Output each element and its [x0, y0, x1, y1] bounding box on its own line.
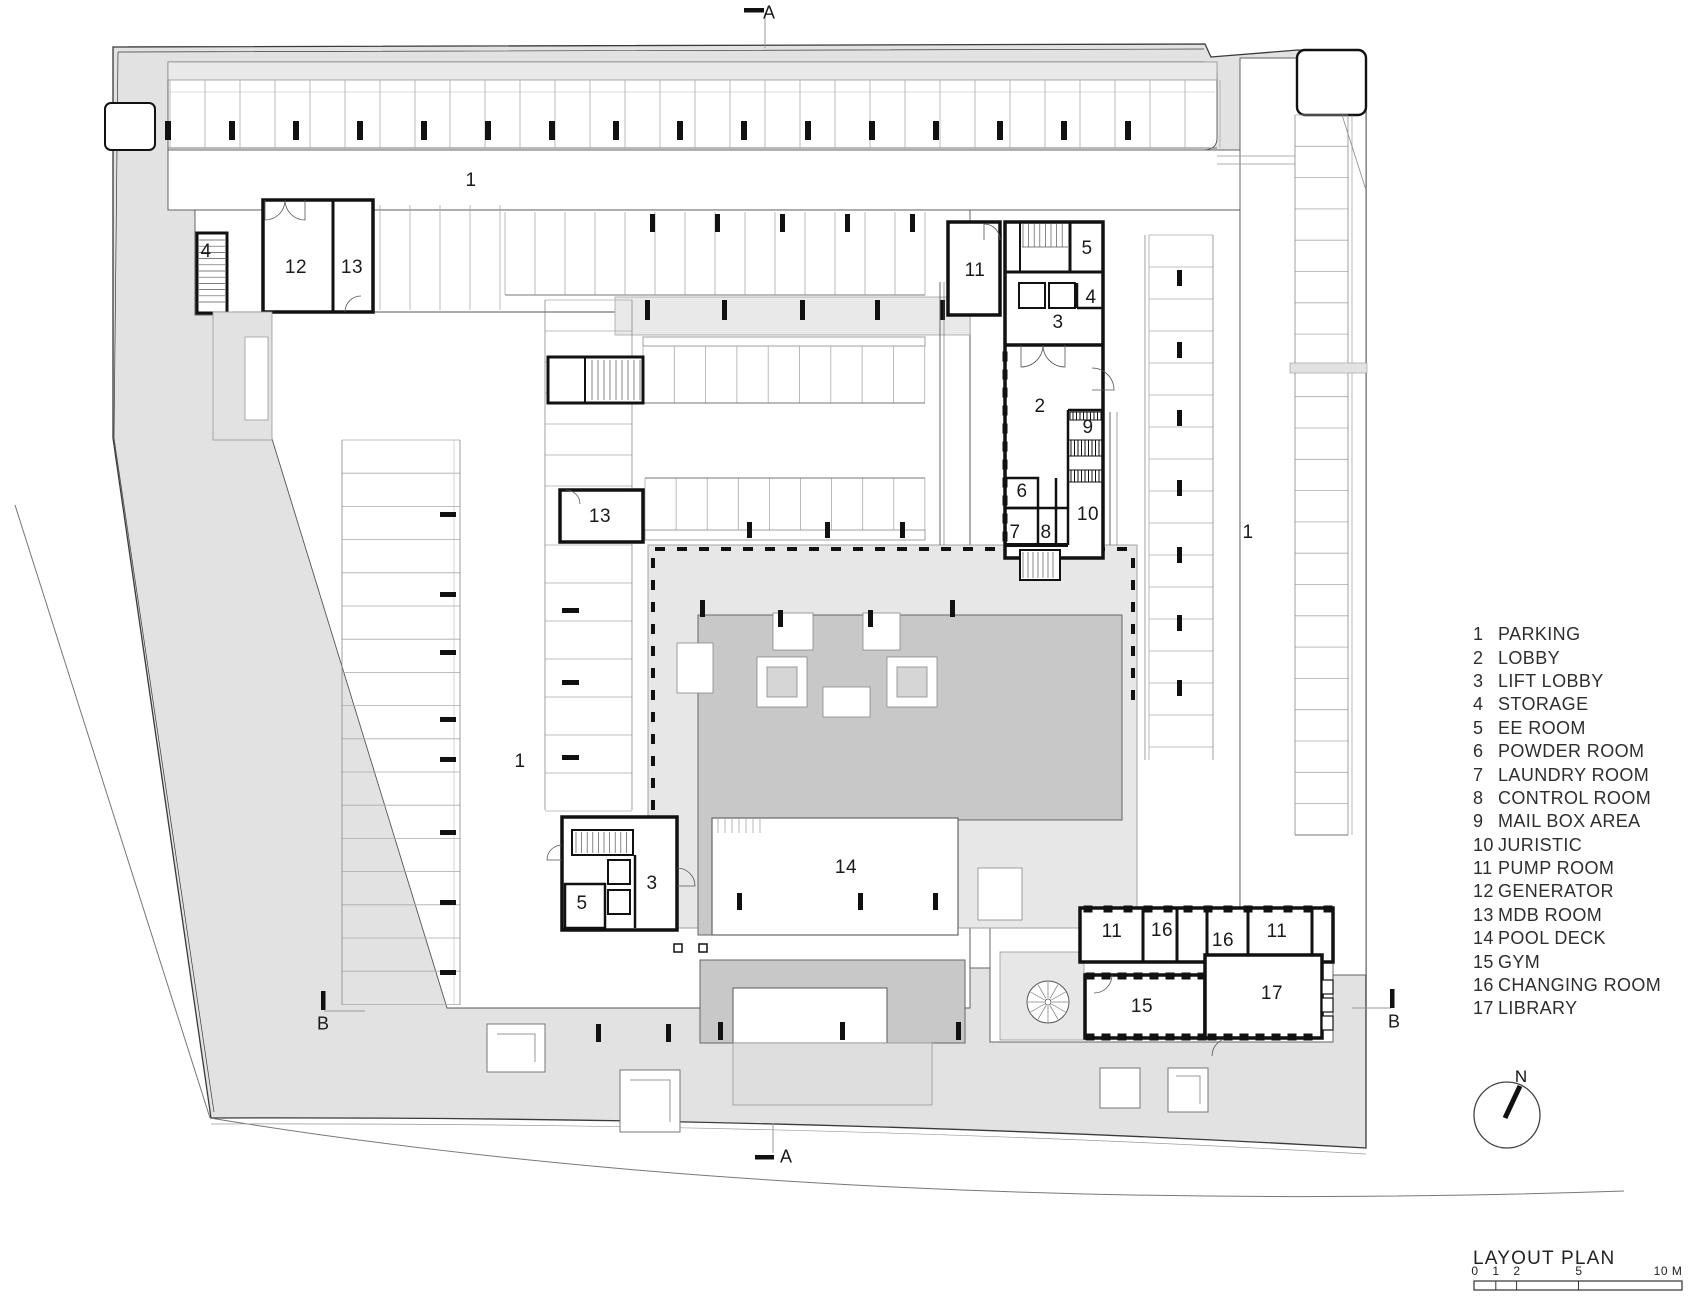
section-b-left-tick [321, 991, 326, 1010]
legend-item-number: 10 [1473, 835, 1498, 856]
section-marker-letter: A [763, 3, 775, 24]
legend: 1PARKING2LOBBY3LIFT LOBBY4STORAGE5EE ROO… [1473, 623, 1661, 1021]
legend-item-number: 1 [1473, 624, 1498, 645]
legend-item-number: 6 [1473, 741, 1498, 762]
legend-item: 1PARKING [1473, 623, 1661, 646]
plan-room-label: 1 [1242, 522, 1253, 544]
legend-item-label: EE ROOM [1498, 718, 1586, 739]
legend-item-label: GENERATOR [1498, 881, 1614, 902]
plan-room-label: 16 [1151, 920, 1173, 942]
plan-room-label: 4 [1085, 287, 1096, 309]
legend-item-number: 8 [1473, 788, 1498, 809]
legend-item: 4STORAGE [1473, 693, 1661, 716]
stair-below-lobby [1020, 550, 1060, 580]
legend-item-label: LIBRARY [1498, 998, 1578, 1019]
legend-item: 3LIFT LOBBY [1473, 670, 1661, 693]
plan-room-label: 17 [1261, 983, 1283, 1005]
north-arrow [1474, 1082, 1540, 1148]
plan-room-label: 9 [1082, 417, 1093, 439]
legend-item-label: PARKING [1498, 624, 1580, 645]
spiral-stair [1027, 981, 1069, 1023]
legend-item-label: MAIL BOX AREA [1498, 811, 1641, 832]
plan-room-label: 13 [589, 506, 611, 528]
legend-item-label: LIFT LOBBY [1498, 671, 1604, 692]
legend-item-label: STORAGE [1498, 694, 1589, 715]
plan-room-label: 5 [1081, 238, 1092, 260]
legend-item-label: CHANGING ROOM [1498, 975, 1661, 996]
plan-room-label: 1 [465, 170, 476, 192]
section-a-bottom-tick [755, 1155, 774, 1160]
section-marker-letter: A [780, 1147, 792, 1168]
north-needle [1505, 1086, 1520, 1118]
legend-item-number: 2 [1473, 648, 1498, 669]
plan-room-label: 10 [1077, 504, 1099, 526]
plan-room-label: 11 [1267, 921, 1288, 943]
legend-item-label: LAUNDRY ROOM [1498, 765, 1649, 786]
legend-item-number: 14 [1473, 928, 1498, 949]
legend-item: 10JURISTIC [1473, 834, 1661, 857]
plan-room-label: 8 [1040, 522, 1051, 544]
legend-item-label: GYM [1498, 952, 1540, 973]
plan-room-label: 16 [1212, 930, 1234, 952]
legend-item-number: 5 [1473, 718, 1498, 739]
plan-room-label: 1 [514, 751, 525, 773]
scale-number: 1 [1492, 1264, 1499, 1278]
legend-item: 9MAIL BOX AREA [1473, 810, 1661, 833]
plan-room-label: 6 [1016, 481, 1027, 503]
legend-item-number: 13 [1473, 905, 1498, 926]
legend-item-number: 11 [1473, 858, 1498, 879]
courtyard [648, 545, 1137, 935]
legend-item: 7LAUNDRY ROOM [1473, 763, 1661, 786]
legend-item-label: MDB ROOM [1498, 905, 1602, 926]
legend-item-number: 9 [1473, 811, 1498, 832]
plan-room-label: 12 [285, 257, 307, 279]
plan-room-label: 14 [835, 857, 857, 879]
plan-room-label: 13 [341, 257, 363, 279]
section-b-right-tick [1390, 989, 1395, 1008]
legend-item-number: 3 [1473, 671, 1498, 692]
plan-room-label: 3 [1052, 312, 1063, 334]
north-label: N [1515, 1067, 1527, 1087]
elevator [608, 860, 630, 884]
section-marker-letter: B [1388, 1012, 1400, 1033]
legend-item-number: 7 [1473, 765, 1498, 786]
legend-item-label: CONTROL ROOM [1498, 788, 1651, 809]
legend-item: 5EE ROOM [1473, 717, 1661, 740]
legend-item-number: 15 [1473, 952, 1498, 973]
plan-room-label: 7 [1009, 522, 1020, 544]
legend-item-number: 16 [1473, 975, 1498, 996]
plan-room-label: 11 [1102, 921, 1123, 943]
scale-number: 2 [1513, 1264, 1520, 1278]
scale-bar [1474, 1281, 1682, 1290]
legend-item-label: POWDER ROOM [1498, 741, 1644, 762]
legend-item-number: 17 [1473, 998, 1498, 1019]
legend-item: 8CONTROL ROOM [1473, 787, 1661, 810]
section-marker-letter: B [317, 1014, 329, 1035]
legend-item-label: PUMP ROOM [1498, 858, 1614, 879]
legend-item-number: 12 [1473, 881, 1498, 902]
legend-item-number: 4 [1473, 694, 1498, 715]
section-a-top-tick [744, 8, 764, 13]
legend-item-label: POOL DECK [1498, 928, 1606, 949]
legend-item: 14POOL DECK [1473, 927, 1661, 950]
plan-room-label: 2 [1034, 396, 1045, 418]
plan-room-label: 3 [646, 873, 657, 895]
legend-item-label: JURISTIC [1498, 835, 1582, 856]
legend-item: 16CHANGING ROOM [1473, 974, 1661, 997]
legend-item: 11PUMP ROOM [1473, 857, 1661, 880]
legend-item: 15GYM [1473, 950, 1661, 973]
scale-number: 0 [1471, 1264, 1478, 1278]
floor-plan-drawing [0, 0, 1700, 1305]
elevator [608, 890, 630, 914]
scale-number: 5 [1575, 1264, 1582, 1278]
legend-item: 2LOBBY [1473, 646, 1661, 669]
bottom-left-core [547, 817, 695, 930]
legend-item: 6POWDER ROOM [1473, 740, 1661, 763]
legend-item: 17LIBRARY [1473, 997, 1661, 1020]
legend-item: 12GENERATOR [1473, 880, 1661, 903]
layout-plan-sheet: 14121311543291361078111453111616111517 A… [0, 0, 1700, 1305]
plan-room-label: 4 [200, 241, 211, 263]
plan-room-label: 15 [1131, 996, 1153, 1018]
plan-room-label: 11 [965, 260, 986, 282]
plan-room-label: 5 [576, 893, 587, 915]
legend-item: 13MDB ROOM [1473, 904, 1661, 927]
legend-item-label: LOBBY [1498, 648, 1560, 669]
scale-number: 10 M [1654, 1264, 1683, 1278]
